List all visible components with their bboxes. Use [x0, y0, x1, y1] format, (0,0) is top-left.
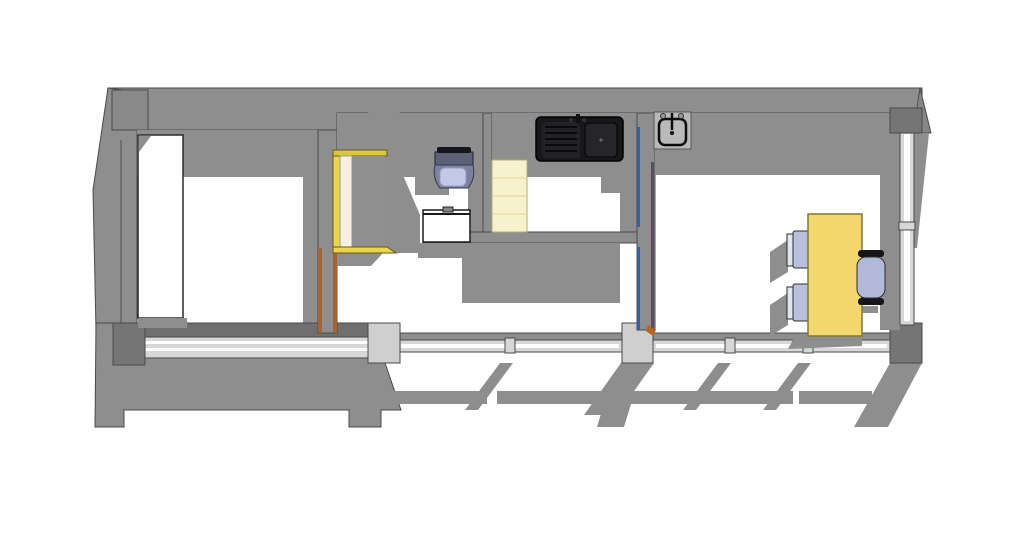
kitchen-faucet-knob-1: [569, 118, 573, 122]
right-outer-shadow-strip: [914, 133, 929, 248]
under-band-gap-2: [793, 391, 799, 404]
kitchen-faucet-knob-2: [582, 118, 586, 122]
pipe-blue-upper: [637, 127, 640, 227]
window-mullion-1: [505, 338, 515, 353]
wardrobe-top-rail[interactable]: [333, 150, 387, 156]
toilet-tank-lid: [437, 147, 471, 153]
kitchen-faucet: [576, 114, 580, 123]
door-jamb-east[interactable]: [333, 253, 337, 333]
office-chair-armrest-top: [858, 250, 884, 257]
corridor-shadow: [418, 243, 620, 303]
wardrobe-interior: [352, 156, 385, 247]
pillar-middle-left: [368, 323, 400, 363]
bedroom-wall-shadow: [303, 130, 318, 333]
wardrobe-side-stile[interactable]: [333, 156, 340, 247]
top-left-corner-block: [112, 90, 148, 130]
office-chair-armrest-bottom: [858, 298, 884, 305]
bedroom-window-band[interactable]: [137, 337, 380, 358]
right-window-mullion: [899, 222, 915, 230]
kitchen-right-shadow: [620, 177, 637, 232]
pipe-blue-lower: [637, 247, 640, 330]
washing-machine-handle: [443, 207, 453, 212]
bed-bottom-shadow: [138, 318, 187, 328]
hand-sink-knob-2: [679, 114, 684, 119]
hand-sink-knob-1: [661, 114, 666, 119]
right-wall-lip: [880, 113, 900, 330]
kitchen-sink-drain-dot: [599, 138, 602, 141]
floorplan-viewport[interactable]: [0, 0, 1023, 543]
dining-table[interactable]: [808, 214, 862, 336]
toilet-tank[interactable]: [435, 152, 473, 165]
wardrobe-bottom-shadow: [337, 253, 383, 266]
floorplan-3d-render[interactable]: [0, 0, 1023, 543]
hand-sink-drain-dot: [670, 131, 674, 135]
pillar-bottom-left: [113, 323, 145, 365]
toilet-seat: [440, 168, 466, 186]
window-mullion-2: [725, 338, 735, 353]
bedroom-window-glass-1: [140, 341, 377, 344]
pipe-plum-east: [651, 162, 654, 330]
chair-2-shadow: [770, 293, 788, 336]
pillar-top-right: [890, 108, 922, 133]
office-chair-seat[interactable]: [857, 257, 885, 298]
kitchen-west-wall[interactable]: [483, 113, 492, 243]
wardrobe-door-panel[interactable]: [340, 156, 352, 247]
wardrobe-bottom-rail[interactable]: [333, 247, 396, 253]
bedroom-window-glass-2: [140, 348, 377, 351]
door-jamb-west[interactable]: [318, 248, 322, 333]
chair-1-shadow: [770, 240, 788, 283]
left-wall-inner-line: [120, 140, 122, 327]
bed[interactable]: [138, 135, 183, 318]
kitchen-step-shadow: [601, 177, 620, 193]
